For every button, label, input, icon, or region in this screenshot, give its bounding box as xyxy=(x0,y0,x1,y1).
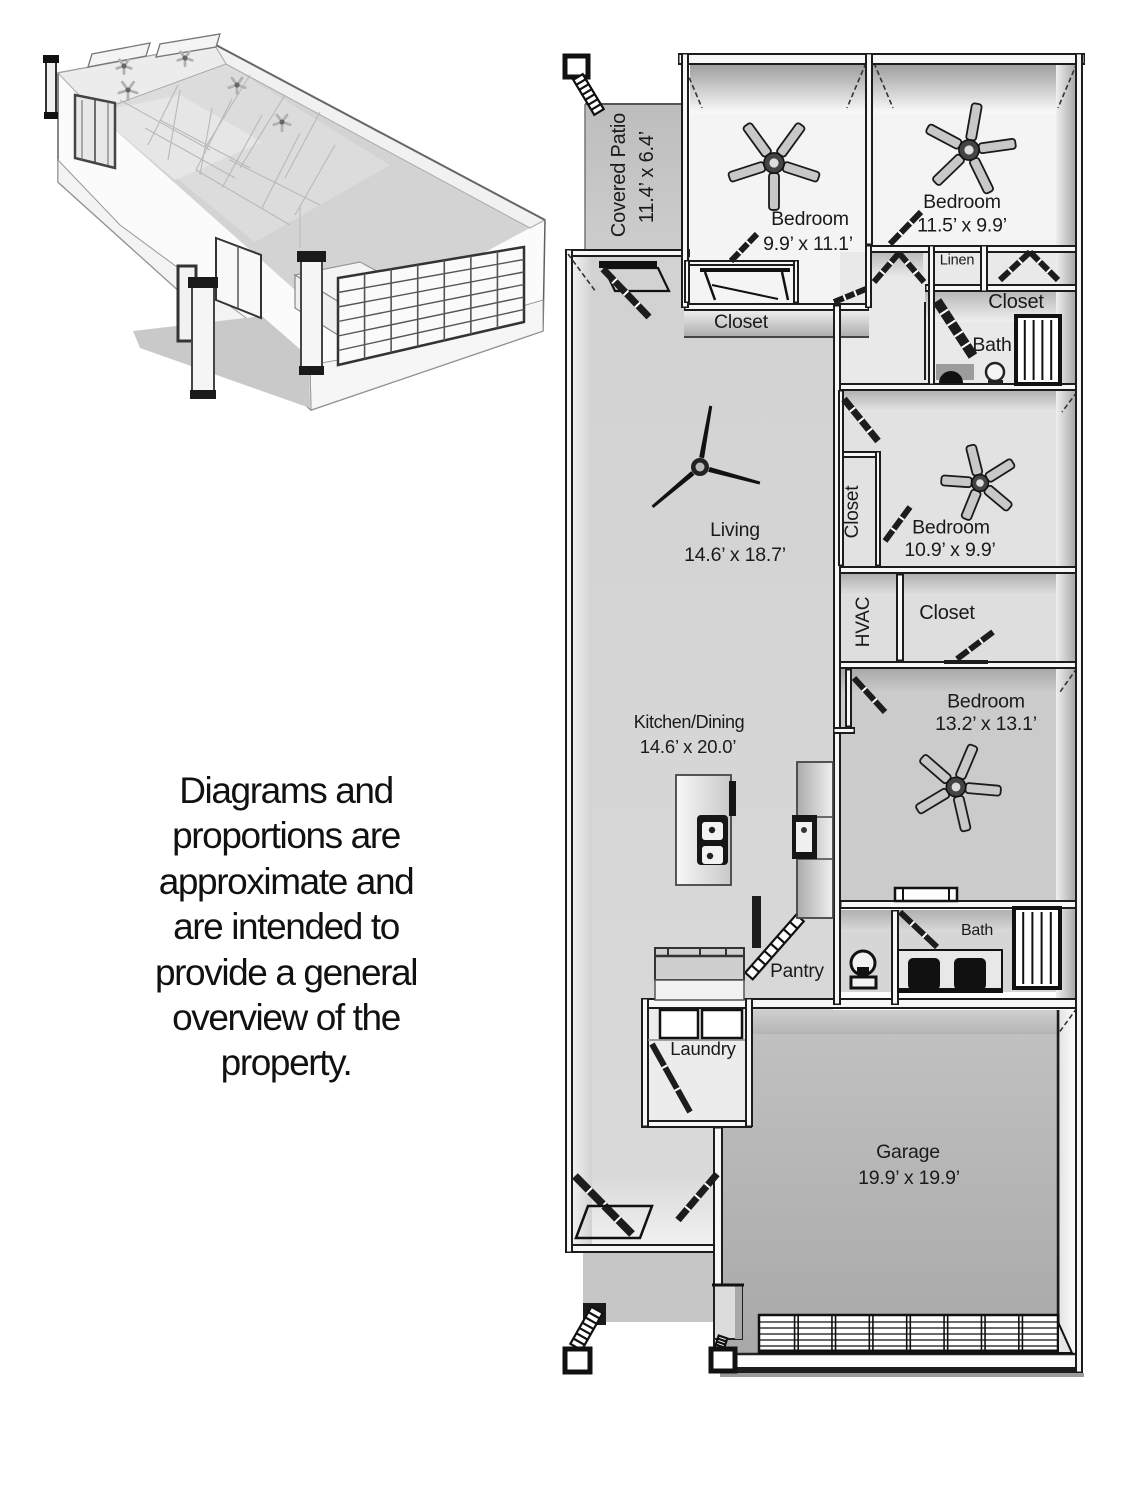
svg-text:Covered Patio: Covered Patio xyxy=(608,113,630,237)
svg-text:Closet: Closet xyxy=(714,311,769,333)
svg-text:Laundry: Laundry xyxy=(670,1038,736,1059)
svg-text:Bedroom: Bedroom xyxy=(947,691,1025,713)
svg-text:Living: Living xyxy=(710,519,760,541)
svg-text:Closet: Closet xyxy=(988,291,1044,313)
svg-text:Bath: Bath xyxy=(961,922,993,939)
svg-text:Bath: Bath xyxy=(972,334,1011,356)
svg-text:11.5’ x 9.9’: 11.5’ x 9.9’ xyxy=(917,215,1007,237)
svg-text:Kitchen/Dining: Kitchen/Dining xyxy=(634,712,744,732)
svg-text:Bedroom: Bedroom xyxy=(912,517,990,539)
svg-text:14.6’ x 18.7’: 14.6’ x 18.7’ xyxy=(684,544,786,566)
svg-text:Bedroom: Bedroom xyxy=(771,208,849,230)
svg-text:Garage: Garage xyxy=(876,1141,940,1163)
svg-text:Closet: Closet xyxy=(842,485,863,539)
svg-text:11.4’ x 6.4’: 11.4’ x 6.4’ xyxy=(636,131,658,223)
svg-text:19.9’ x 19.9’: 19.9’ x 19.9’ xyxy=(858,1167,960,1189)
svg-text:10.9’ x 9.9’: 10.9’ x 9.9’ xyxy=(904,539,995,561)
svg-text:14.6’ x 20.0’: 14.6’ x 20.0’ xyxy=(640,736,736,757)
svg-text:Bedroom: Bedroom xyxy=(923,191,1001,213)
svg-text:9.9’ x 11.1’: 9.9’ x 11.1’ xyxy=(763,233,853,255)
svg-text:Closet: Closet xyxy=(919,602,975,624)
svg-text:13.2’ x 13.1’: 13.2’ x 13.1’ xyxy=(935,713,1037,735)
svg-text:Pantry: Pantry xyxy=(770,961,824,982)
svg-text:HVAC: HVAC xyxy=(853,597,874,648)
svg-text:Linen: Linen xyxy=(940,253,975,269)
